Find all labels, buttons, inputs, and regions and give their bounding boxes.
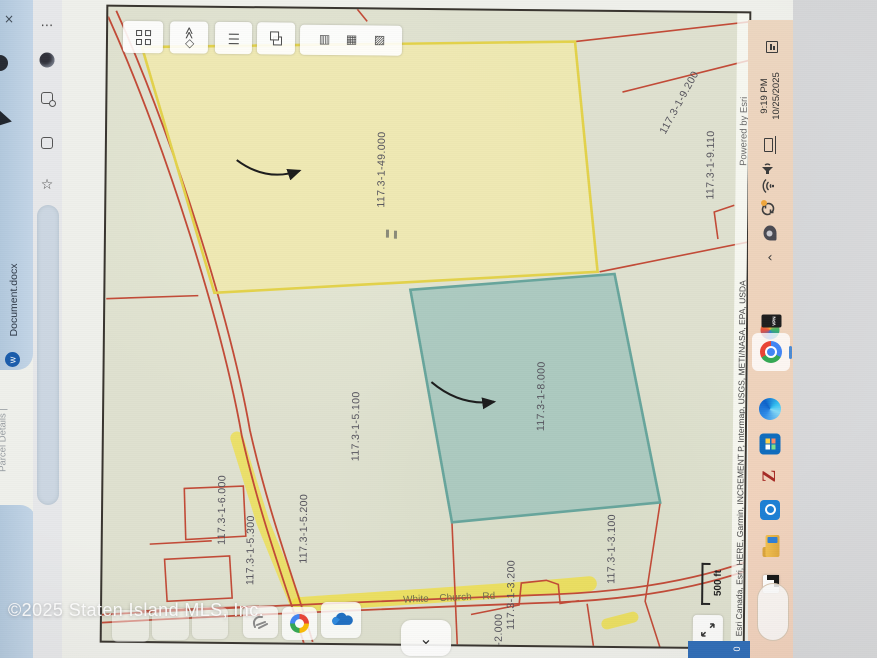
favicon-icon (0, 55, 8, 71)
bookmarks-grid-icon (135, 29, 150, 44)
sync-icon[interactable] (761, 200, 782, 217)
collections-icon[interactable] (41, 92, 53, 104)
battery-icon[interactable] (764, 136, 776, 152)
microsoft-store-icon[interactable] (760, 434, 781, 455)
chrome-icon[interactable] (760, 341, 782, 363)
profile-avatar[interactable] (40, 53, 55, 68)
tab-title-document[interactable]: Document.docx (8, 264, 20, 337)
print-icon: ▧ (371, 35, 385, 46)
cursor-arrow-icon (0, 111, 14, 130)
parcel-label: 117.3-1-3.200 (505, 560, 518, 630)
map-tool-button-bookmarks[interactable] (123, 21, 163, 53)
map-tool-button-basemap[interactable] (257, 22, 295, 54)
parcel-label: 1-2.000 (493, 614, 505, 650)
google-extension-button[interactable] (282, 607, 317, 640)
edge-icon[interactable] (759, 398, 781, 420)
red-z-app-icon[interactable]: Z (759, 470, 781, 483)
word-icon: w (5, 352, 20, 367)
parcel-label: 117.3-1-8.000 (535, 361, 548, 431)
parcel-label: 117.3-1-5.300 (244, 515, 257, 585)
parcel-label: 117.3-1-3.100 (605, 514, 618, 584)
photographed-screenshot: × Document.docx w Parcel Details | ⋯ ☆ (0, 0, 877, 658)
map-canvas[interactable]: 117.3-1-49.000 117.3-1-8.000 117.3-1-5.1… (100, 5, 752, 650)
taskbar-clock[interactable]: 9:19 PM 10/25/2025 (759, 72, 783, 120)
menu-dots-icon[interactable]: ⋯ (41, 19, 54, 34)
map-tool-group[interactable]: ▤ ▦ ▧ (300, 25, 402, 56)
search-box[interactable] (757, 583, 789, 641)
volume-icon[interactable] (761, 161, 779, 175)
scale-label: 500 ft (713, 570, 724, 596)
chevron-down-icon: ⌄ (419, 629, 432, 648)
expand-arrows-icon (699, 621, 717, 639)
diamond-chevrons-icon: ◇≫ (182, 27, 196, 49)
word-icon-letter: w (8, 356, 18, 363)
onedrive-button[interactable] (321, 602, 361, 638)
parcel-label: 117.3-1-6.000 (216, 475, 229, 545)
layer-stack-icon: ▤ (317, 34, 331, 45)
assistant-bubble-icon[interactable] (764, 226, 777, 241)
browser-tab-strip[interactable]: × Document.docx w (0, 0, 33, 370)
tab-actions-icon[interactable] (41, 137, 53, 149)
overlap-pages-icon (270, 31, 282, 45)
browser-toolbar-strip: ⋯ ☆ (33, 0, 62, 658)
onedrive-cloud-icon (329, 612, 353, 628)
map-tool-button-layers[interactable]: ||| (215, 22, 252, 54)
vpn-badge: VPN (772, 317, 777, 326)
clock-date: 10/25/2025 (771, 72, 783, 120)
windows-taskbar: 9:19 PM 10/25/2025 (748, 20, 793, 658)
legend-icon: ▦ (344, 34, 358, 45)
status-value: 0 (732, 646, 742, 651)
mls-watermark: ©2025 Staten Island MLS, Inc. (8, 600, 264, 621)
map-tool-button-measure[interactable]: ◇≫ (170, 21, 208, 53)
favorites-star-icon[interactable]: ☆ (41, 177, 54, 193)
close-icon[interactable]: × (4, 12, 14, 26)
active-app-indicator (789, 346, 792, 359)
parcel-label: 117.3-1-5.200 (298, 494, 311, 564)
parcel-label: 117.3-1-5.100 (350, 391, 363, 461)
parcel-map-graphics (102, 7, 752, 650)
file-explorer-icon[interactable] (763, 535, 780, 557)
action-center-icon[interactable] (766, 41, 778, 53)
clock-time: 9:19 PM (759, 72, 771, 120)
hidden-icons-chevron[interactable]: ‹ (767, 251, 772, 266)
wifi-icon[interactable] (761, 179, 779, 194)
address-bar[interactable] (37, 205, 59, 505)
scale-bar (701, 563, 710, 605)
tab-title-parcel-details[interactable]: Parcel Details | (0, 408, 9, 472)
google-icon (290, 614, 309, 633)
status-bar-fragment: 0 (688, 641, 750, 658)
blue-app-icon[interactable] (760, 500, 780, 520)
collapse-button[interactable]: ⌄ (401, 620, 451, 656)
bars-icon: ||| (228, 31, 239, 45)
parcel-label: 117.3-1-49.000 (375, 131, 388, 207)
parcel-label: 117.3-1-9.110 (704, 130, 717, 199)
browser-tab-strip-2[interactable] (0, 505, 36, 658)
screenshot-page: × Document.docx w Parcel Details | ⋯ ☆ (0, 0, 793, 658)
